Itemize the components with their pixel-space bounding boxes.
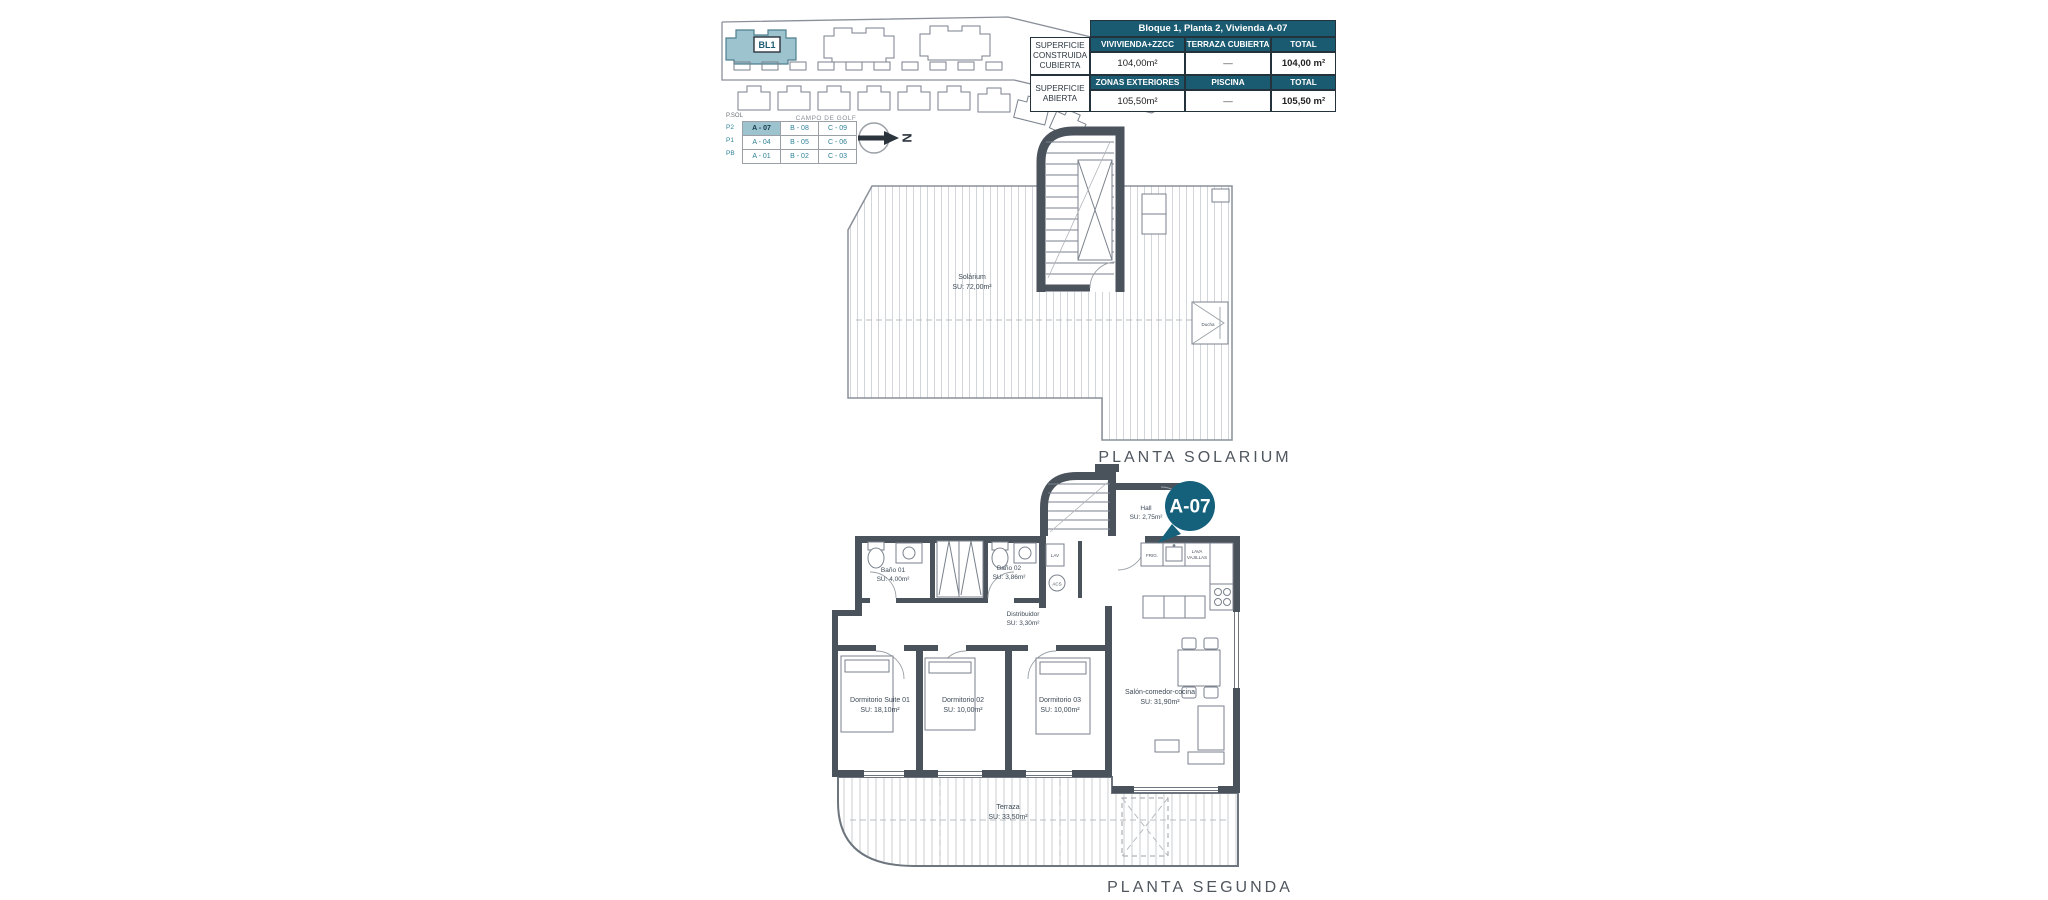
dorm3-name: Dormitorio 03 (1039, 697, 1081, 704)
terraza-area: SU: 33,50m² (988, 814, 1028, 821)
suite-name: Dormitorio Suite 01 (850, 697, 910, 704)
col-header: VIVIVIENDA+ZZCC (1090, 37, 1185, 52)
col-header: TOTAL (1271, 37, 1336, 52)
unit-badge: A-07 (1158, 481, 1215, 543)
legend-level: P2 (726, 121, 742, 134)
north-arrow-icon: N (858, 123, 915, 153)
fridge-label: FRIG. (1146, 553, 1158, 558)
value-cell: — (1185, 90, 1271, 112)
dishwasher-label-1: LAVA (1192, 549, 1203, 554)
unit-badge-label: A-07 (1169, 497, 1210, 518)
legend-grid: A - 07 B - 08 C - 09 A - 04 B - 05 C - 0… (742, 121, 857, 164)
col-header: TOTAL (1271, 75, 1336, 90)
segunda-plan: LAV ACS FRIG. LAVA VAJILLAS (832, 464, 1293, 896)
legend-cell: B - 08 (781, 122, 819, 136)
value-cell: — (1185, 52, 1271, 75)
building (824, 28, 894, 62)
stair-core (1041, 131, 1120, 292)
col-header: PISCINA (1185, 75, 1271, 90)
distribuidor-area: SU: 3,30m² (1007, 620, 1041, 627)
total-cell: 105,50 m² (1271, 90, 1336, 112)
bano1-area: SU: 4,00m² (877, 576, 911, 583)
legend-cell: B - 05 (781, 136, 819, 150)
surface-row-label-cubierta: SUPERFICIE CONSTRUIDA CUBIERTA (1030, 37, 1090, 75)
solarium-room-name: Solárium (958, 274, 986, 281)
unit-legend: P.SOL P2 P1 PB A - 07 B - 08 C - 09 A - … (726, 112, 857, 164)
col-header: TERRAZA CUBIERTA (1185, 37, 1271, 52)
legend-level-column: P2 P1 PB (726, 121, 742, 164)
bedroom-furniture (841, 656, 1090, 734)
salon-area: SU: 31,90m² (1140, 699, 1180, 706)
surface-table-spacer (1030, 20, 1090, 37)
legend-caption: P.SOL (726, 112, 857, 121)
heater-label: ACS (1052, 582, 1061, 587)
bano2-name: Baño 02 (997, 565, 1022, 572)
bano2-area: SU: 3,86m² (993, 574, 1027, 581)
dorm3-area: SU: 10,00m² (1040, 707, 1080, 714)
floorplan-graphics: BL1 CAMPO DE GOLF N (0, 0, 2048, 900)
building (920, 26, 990, 60)
surface-table: Bloque 1, Planta 2, Vivienda A-07 SUPERF… (1030, 20, 1336, 112)
kitchen: FRIG. LAVA VAJILLAS (1141, 543, 1233, 618)
legend-cell: A - 01 (743, 150, 781, 164)
distribuidor-name: Distribuidor (1007, 611, 1041, 618)
value-cell: 104,00m² (1090, 52, 1185, 75)
solarium-plan: Ducha Solárium SU: 72,00m² PLANTA SOLARI… (848, 131, 1292, 466)
solarium-caption: PLANTA SOLARIUM (1098, 449, 1291, 466)
shower-label: Ducha (1201, 322, 1215, 327)
legend-cell: C - 09 (819, 122, 857, 136)
laundry-label: LAV (1051, 553, 1059, 558)
legend-cell: A - 04 (743, 136, 781, 150)
legend-level: PB (726, 147, 742, 160)
legend-cell: C - 03 (819, 150, 857, 164)
stair-core-2 (1044, 464, 1119, 536)
surface-table-title: Bloque 1, Planta 2, Vivienda A-07 (1090, 20, 1336, 37)
terraza-name: Terraza (996, 804, 1019, 811)
total-cell: 104,00 m² (1271, 52, 1336, 75)
dorm2-area: SU: 10,00m² (943, 707, 983, 714)
suite-area: SU: 18,10m² (860, 707, 900, 714)
solarium-room-area: SU: 72,00m² (952, 284, 992, 291)
surface-row-label-abierta: SUPERFICIE ABIERTA (1030, 75, 1090, 112)
value-cell: 105,50m² (1090, 90, 1185, 112)
north-letter: N (900, 133, 915, 142)
bl1-tag-label: BL1 (758, 40, 775, 50)
legend-cell-a07: A - 07 (743, 122, 781, 136)
hall-name: Hall (1140, 505, 1152, 512)
bano1-name: Baño 01 (881, 567, 906, 574)
legend-level: P1 (726, 134, 742, 147)
legend-cell: B - 02 (781, 150, 819, 164)
segunda-caption: PLANTA SEGUNDA (1107, 879, 1293, 896)
salon-name: Salón-comedor-cocina (1125, 689, 1195, 696)
col-header: ZONAS EXTERIORES (1090, 75, 1185, 90)
dishwasher-label-2: VAJILLAS (1187, 555, 1207, 560)
shower-box: Ducha (1192, 302, 1228, 344)
dorm2-name: Dormitorio 02 (942, 697, 984, 704)
plan-sheet: BL1 CAMPO DE GOLF N (0, 0, 2048, 900)
legend-cell: C - 06 (819, 136, 857, 150)
hall-area: SU: 2,75m² (1130, 514, 1164, 521)
